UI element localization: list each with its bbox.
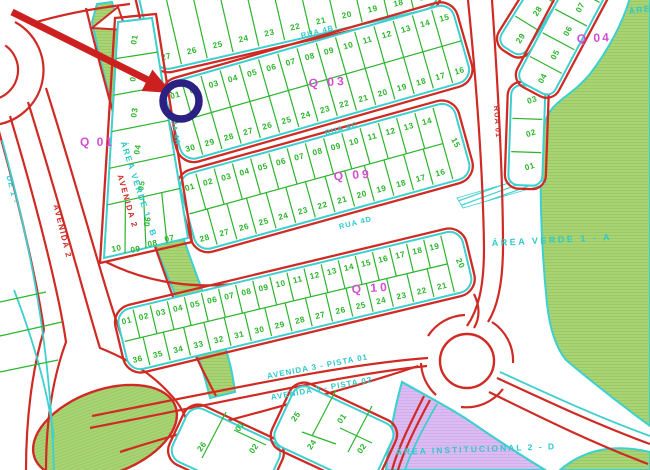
- quadra-label-q09: Q 09: [333, 167, 372, 184]
- lot-number: 04: [132, 144, 143, 156]
- lot-number: 03: [129, 107, 140, 119]
- street-label-rua-4d: RUA 4D: [338, 214, 373, 231]
- street-label-avenida-2: AVENIDA 2: [51, 203, 73, 259]
- quadra-label-q10: Q 10: [351, 280, 390, 297]
- lot-line: [0, 322, 62, 336]
- road-edge: [0, 22, 43, 125]
- quadra-label-q01: Q 01: [80, 135, 114, 149]
- road-edge: [428, 315, 465, 336]
- subdivision-map: 2726252423222120191817010203040506070809…: [0, 0, 650, 470]
- road-edge: [461, 389, 503, 407]
- quadra-label-q03: Q 03: [308, 74, 347, 91]
- street-label-rua-01: RUA 01: [492, 105, 503, 138]
- road-edge: [0, 45, 18, 99]
- area-label-fragment-left: DE 1 -: [5, 174, 21, 204]
- lot-number: 01: [129, 34, 140, 46]
- road-edge: [421, 363, 436, 395]
- roundabout: [440, 334, 494, 388]
- map-canvas: 2726252423222120191817010203040506070809…: [0, 0, 650, 470]
- road-edge: [492, 322, 513, 363]
- quadra-label-q04: Q 04: [576, 30, 611, 46]
- lot-line: [0, 360, 58, 372]
